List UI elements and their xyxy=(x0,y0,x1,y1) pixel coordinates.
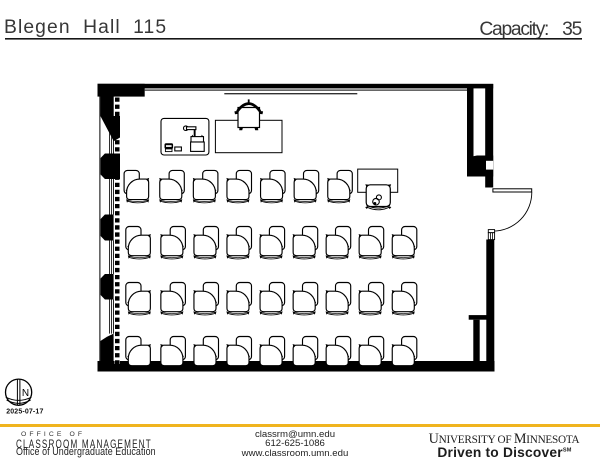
svg-text:2025-07-17: 2025-07-17 xyxy=(6,408,43,415)
svg-text:N: N xyxy=(22,388,29,399)
